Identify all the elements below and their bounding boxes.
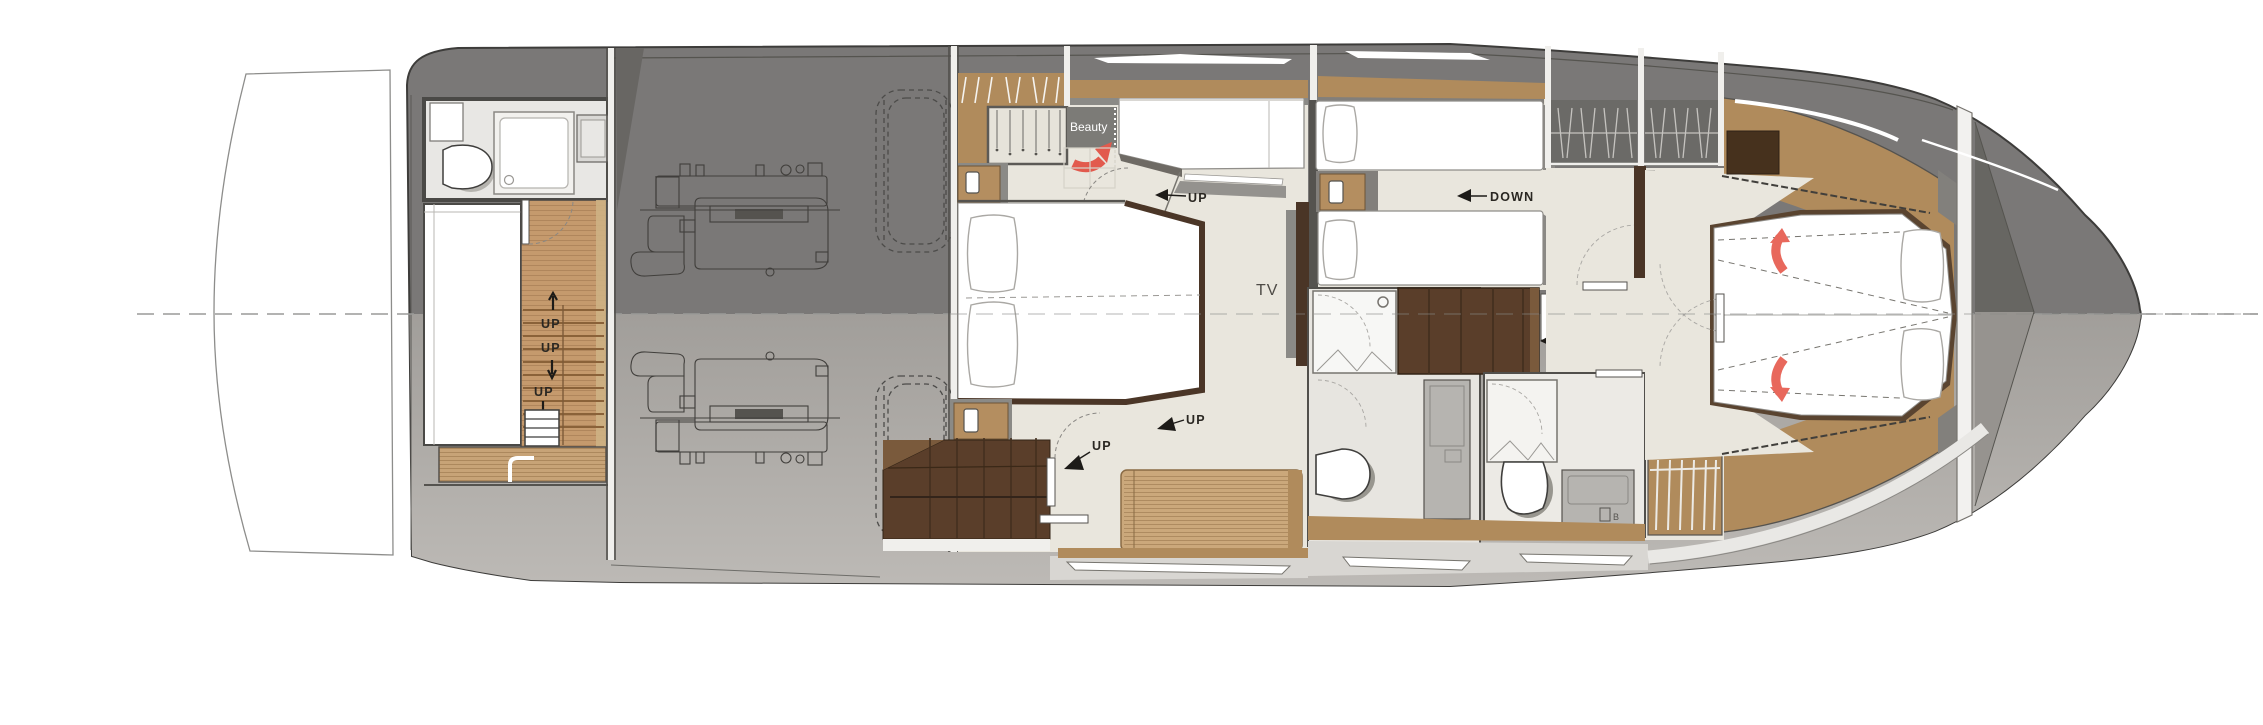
svg-text:UP: UP [534,385,554,399]
svg-text:TV: TV [1256,282,1278,299]
svg-text:UP: UP [541,341,561,355]
svg-text:UP: UP [1186,413,1206,427]
svg-text:DOWN: DOWN [1490,190,1534,204]
svg-text:UP: UP [1092,439,1112,453]
svg-text:Beauty: Beauty [1070,120,1107,134]
svg-text:UP: UP [1188,191,1208,205]
svg-text:UP: UP [541,317,561,331]
svg-text:B: B [1613,512,1619,522]
